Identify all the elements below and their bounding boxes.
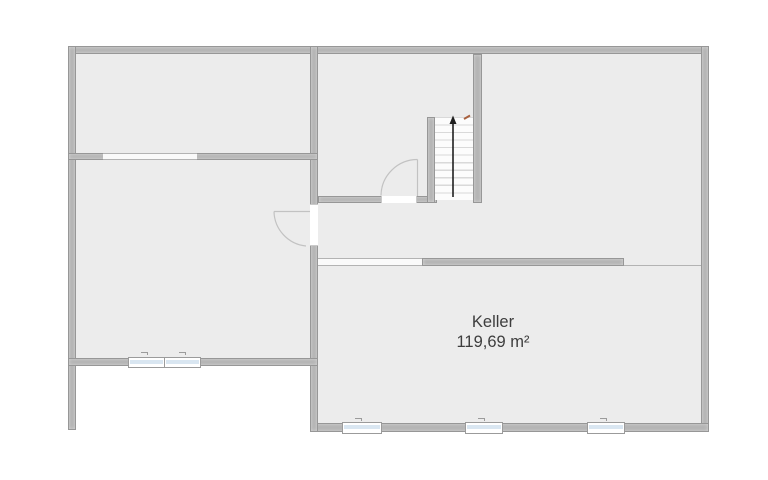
wall-stair-right — [473, 54, 482, 203]
wall-exterior-right — [701, 46, 709, 432]
room-area: 119,69 m² — [393, 332, 593, 352]
wall-stair-room-bottom — [318, 196, 437, 203]
window-tick-mark — [600, 418, 607, 421]
window — [342, 422, 382, 434]
staircase — [435, 117, 473, 200]
room-boundary-line — [624, 265, 701, 266]
floor-plan-canvas: Keller 119,69 m² — [0, 0, 768, 480]
wall-passage-keller — [318, 258, 422, 266]
window — [465, 422, 503, 434]
wall-passage-upper-left — [103, 153, 197, 160]
door-opening-center-wall — [310, 204, 318, 246]
wall-exterior-left — [68, 46, 76, 430]
window-glass — [166, 360, 199, 364]
window-glass — [589, 425, 623, 429]
floor-area-keller-south — [310, 366, 701, 423]
wall-stair-left — [427, 117, 435, 203]
wall-exterior-top — [68, 46, 709, 54]
window-glass — [467, 425, 501, 429]
wall-keller-north — [422, 258, 624, 266]
window — [164, 357, 201, 368]
floor-area-main — [76, 54, 701, 366]
window-tick-mark — [179, 352, 186, 355]
window-tick-mark — [141, 352, 148, 355]
door-opening-stair-room — [381, 196, 417, 203]
window-tick-mark — [355, 418, 362, 421]
room-label: Keller 119,69 m² — [393, 312, 593, 352]
window-glass — [344, 425, 380, 429]
window-tick-mark — [478, 418, 485, 421]
window-glass — [130, 360, 163, 364]
room-name: Keller — [393, 312, 593, 332]
window — [128, 357, 165, 368]
window — [587, 422, 625, 434]
